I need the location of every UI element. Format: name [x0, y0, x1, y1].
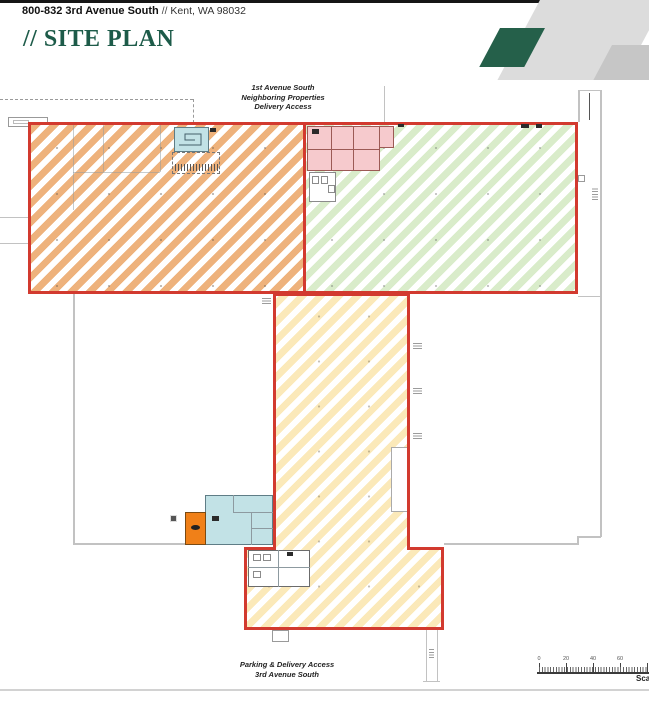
roof-unit-chip — [212, 516, 219, 521]
building-outline — [578, 90, 601, 91]
restroom-fixture — [312, 176, 319, 184]
top-label-line1: 1st Avenue South — [203, 83, 363, 93]
restroom-fixture — [253, 554, 261, 561]
building-outline — [600, 90, 602, 537]
south-core-wall — [278, 550, 279, 587]
roof-unit-chip — [536, 124, 542, 128]
rack-ticks — [175, 164, 218, 171]
page-title: // SITE PLAN — [23, 26, 174, 53]
dimension-text-mark — [413, 386, 422, 394]
boundary-dashed-line-h — [0, 99, 193, 100]
dimension-text-mark — [413, 431, 422, 439]
sw-suite-wall — [233, 495, 234, 512]
footer-rule — [0, 689, 649, 691]
restroom-fixture — [253, 571, 261, 578]
restroom-fixture — [328, 185, 335, 193]
driveway-line — [426, 630, 427, 682]
column-notch-room — [391, 447, 407, 512]
roof-unit-chip — [210, 128, 216, 132]
dimension-text-mark — [262, 297, 271, 304]
site-plan-page: 800-832 3rd Avenue South // Kent, WA 980… — [0, 0, 649, 717]
boundary-dashed-line-v — [193, 99, 194, 123]
roof-unit-chip — [398, 124, 404, 127]
dimension-text-mark — [413, 341, 422, 349]
top-access-label: 1st Avenue South Neighboring Properties … — [203, 83, 363, 112]
interior-wall — [103, 125, 104, 172]
roof-unit-chip — [287, 552, 293, 556]
top-label-line2: Neighboring Properties — [203, 93, 363, 103]
scale-caption: Scale — [636, 674, 649, 683]
driveway-label-mark — [429, 648, 434, 658]
scale-label-0: 0 — [533, 656, 545, 662]
scale-label-40: 40 — [587, 656, 599, 662]
address-separator: // — [162, 6, 168, 17]
roof-unit-chip — [521, 124, 529, 128]
building-outline — [0, 243, 28, 244]
property-city: Kent, WA 98032 — [170, 5, 246, 17]
south-core-wall — [248, 567, 310, 568]
parcel-boundary — [441, 547, 444, 630]
driveway-notch — [578, 175, 585, 182]
building-outline — [578, 296, 601, 297]
parcel-boundary — [407, 294, 410, 550]
parcel-boundary — [407, 547, 444, 550]
interior-wall — [73, 172, 160, 173]
pink-suite-wall — [307, 149, 380, 150]
parcel-west-orange — [28, 122, 306, 294]
header-address-line: 800-832 3rd Avenue South // Kent, WA 980… — [22, 5, 246, 17]
conveyor-line-icon — [175, 128, 208, 151]
building-outline — [73, 294, 75, 545]
bottom-access-label: Parking & Delivery Access 3rd Avenue Sou… — [197, 660, 377, 679]
pink-office-annex — [379, 126, 394, 148]
parcel-boundary — [273, 293, 410, 296]
parcel-boundary — [244, 547, 247, 630]
dimension-text-mark — [592, 188, 598, 200]
equipment-icon — [170, 515, 177, 522]
cyan-office-room — [174, 127, 209, 152]
sw-suite-wall — [233, 512, 273, 513]
building-outline — [0, 217, 28, 218]
bottom-label-line1: Parking & Delivery Access — [197, 660, 377, 670]
interior-wall — [160, 125, 161, 172]
leader-line — [384, 86, 385, 122]
entry-vestibule — [272, 630, 289, 642]
restroom-fixture — [263, 554, 271, 561]
building-outline — [578, 90, 580, 122]
scale-bar-baseline — [537, 672, 649, 674]
driveway-line — [437, 630, 438, 682]
scale-label-20: 20 — [560, 656, 572, 662]
parcel-boundary — [273, 294, 276, 550]
scale-label-60: 60 — [614, 656, 626, 662]
site-key-inner — [13, 120, 29, 124]
restroom-fixture — [321, 176, 328, 184]
building-outline — [444, 543, 578, 545]
top-label-line3: Delivery Access — [203, 102, 363, 112]
driveway-tick — [423, 681, 440, 682]
bottom-label-line2: 3rd Avenue South — [197, 670, 377, 680]
roof-unit-chip — [312, 129, 319, 134]
interior-wall — [73, 125, 74, 210]
property-address: 800-832 3rd Avenue South — [22, 5, 159, 17]
dimension-line — [589, 93, 590, 120]
utility-oval — [191, 525, 200, 530]
building-outline — [577, 536, 601, 538]
sw-suite-wall — [251, 528, 273, 529]
